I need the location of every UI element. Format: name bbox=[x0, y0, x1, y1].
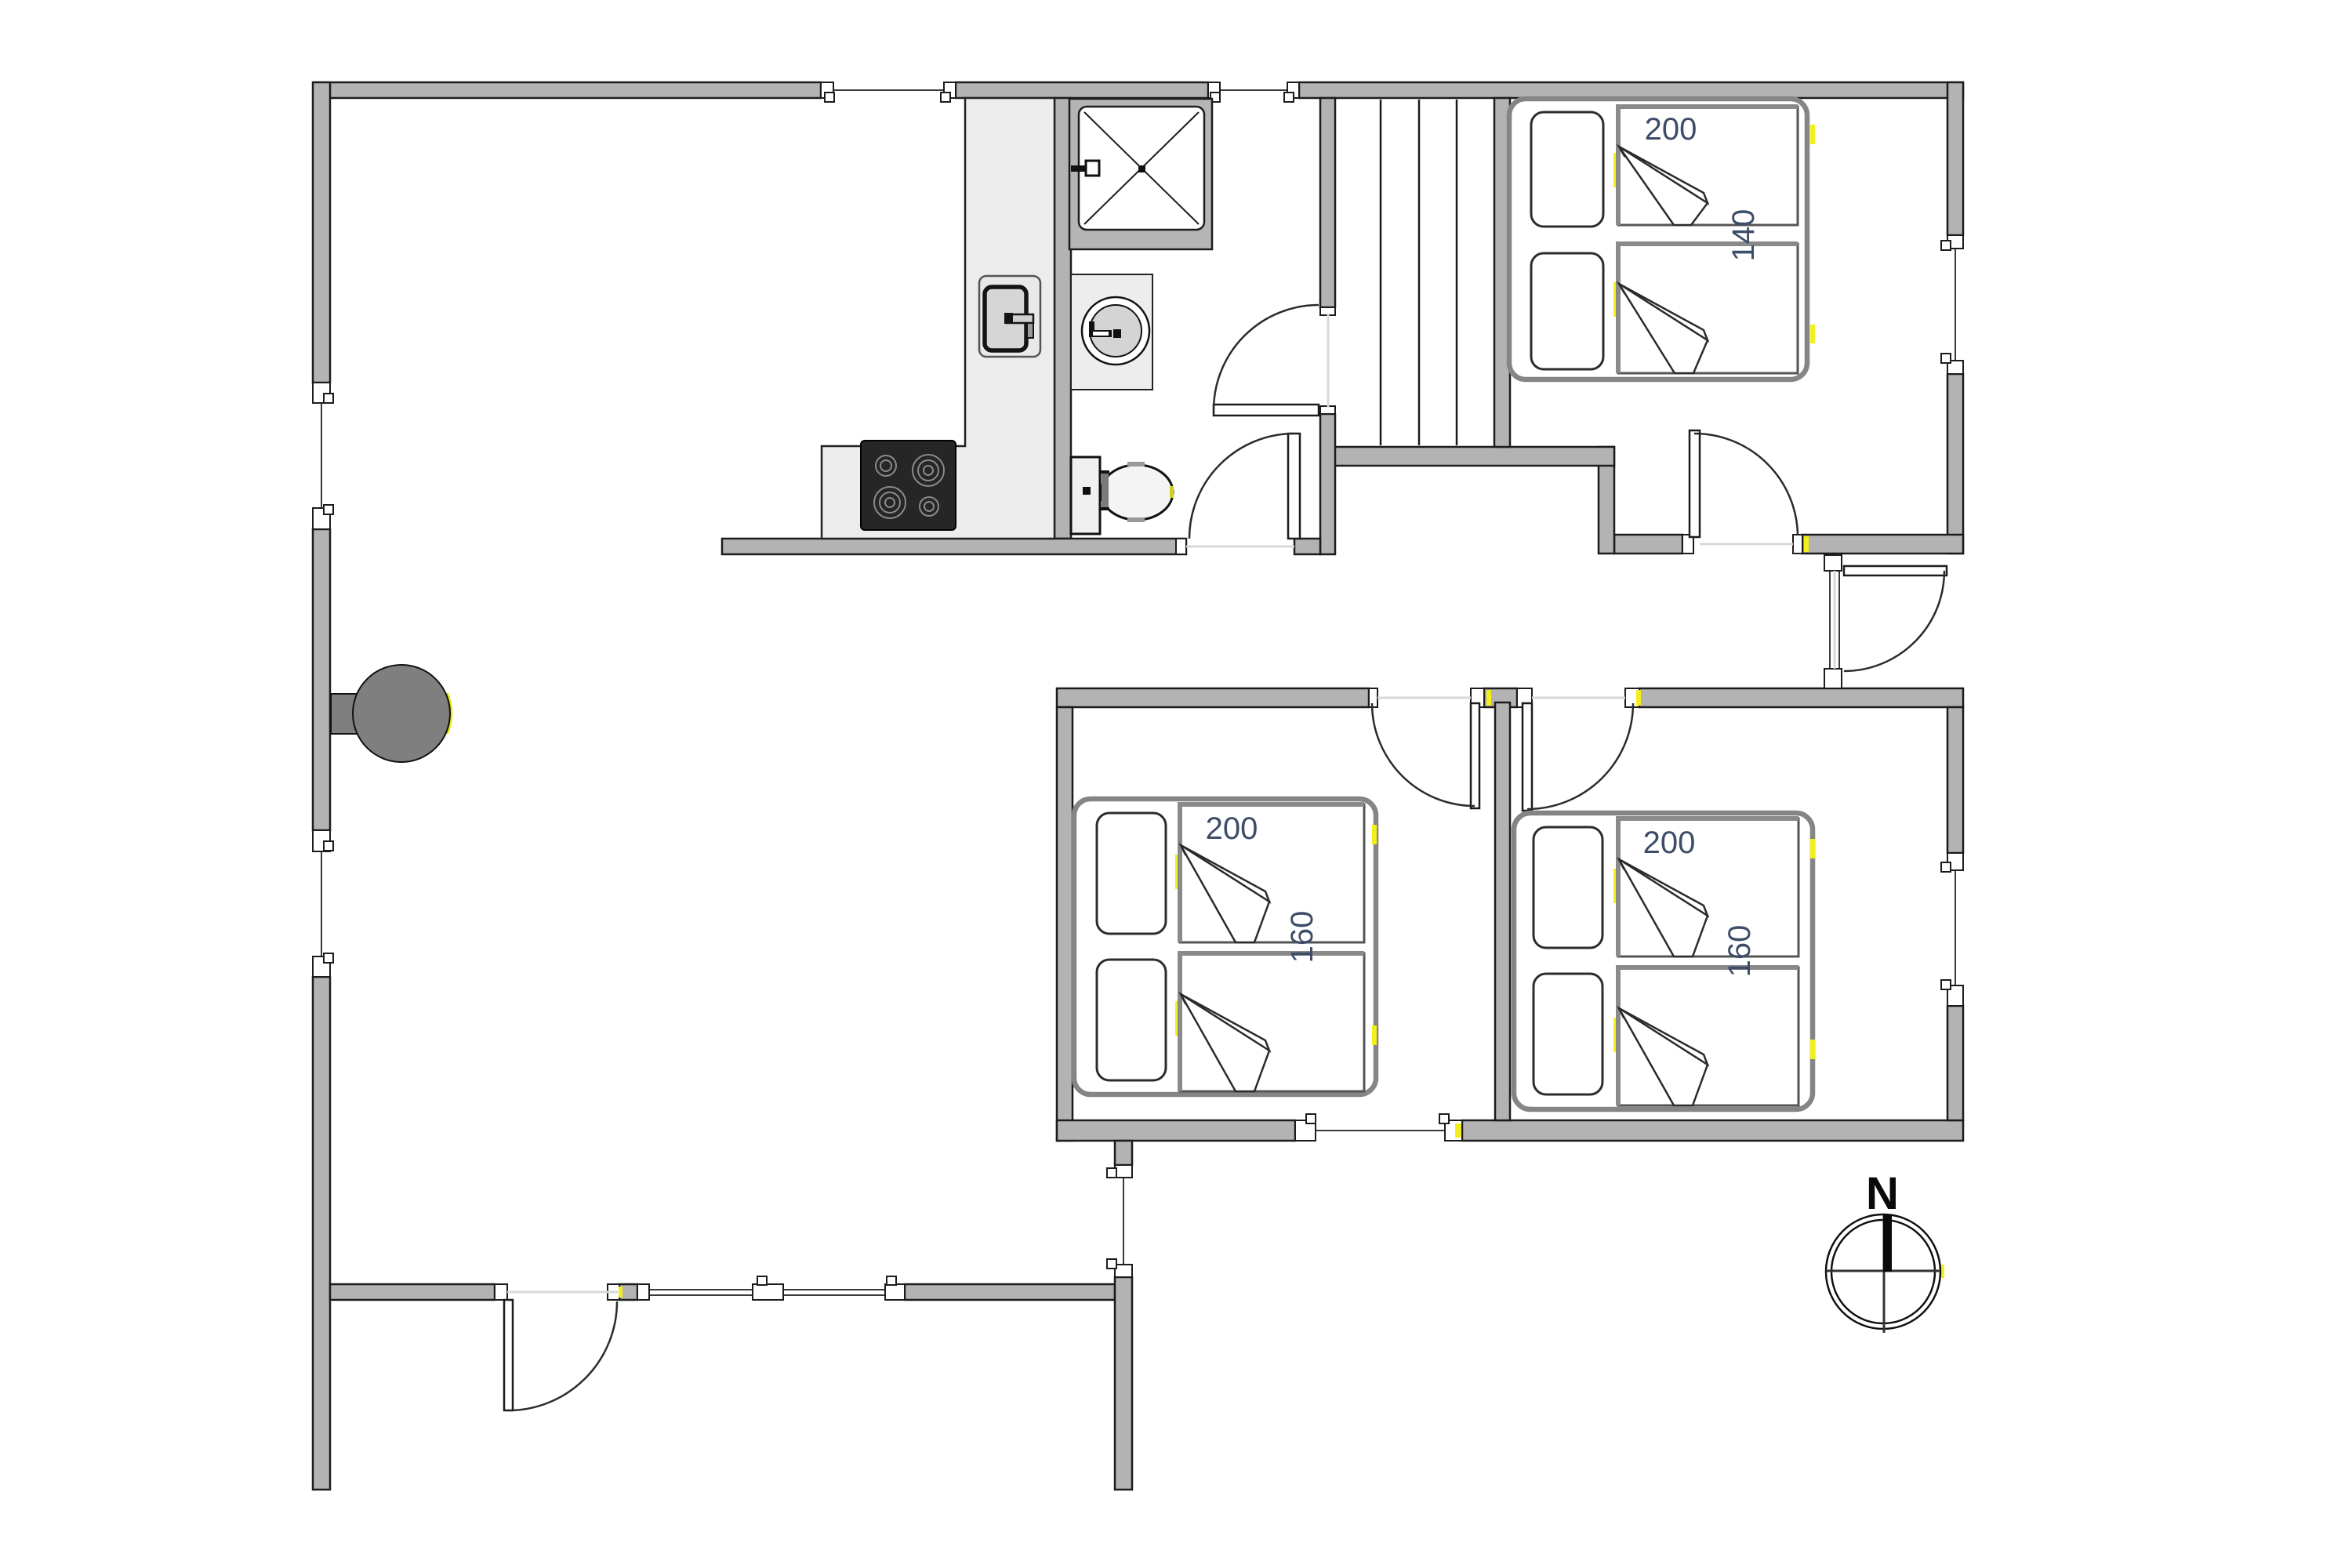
svg-text:200: 200 bbox=[1645, 112, 1697, 147]
svg-text:200: 200 bbox=[1206, 811, 1258, 846]
svg-text:160: 160 bbox=[1285, 911, 1319, 964]
svg-text:160: 160 bbox=[1722, 925, 1757, 978]
svg-text:N: N bbox=[1866, 1168, 1899, 1219]
svg-text:140: 140 bbox=[1726, 209, 1761, 262]
svg-text:200: 200 bbox=[1643, 826, 1696, 860]
